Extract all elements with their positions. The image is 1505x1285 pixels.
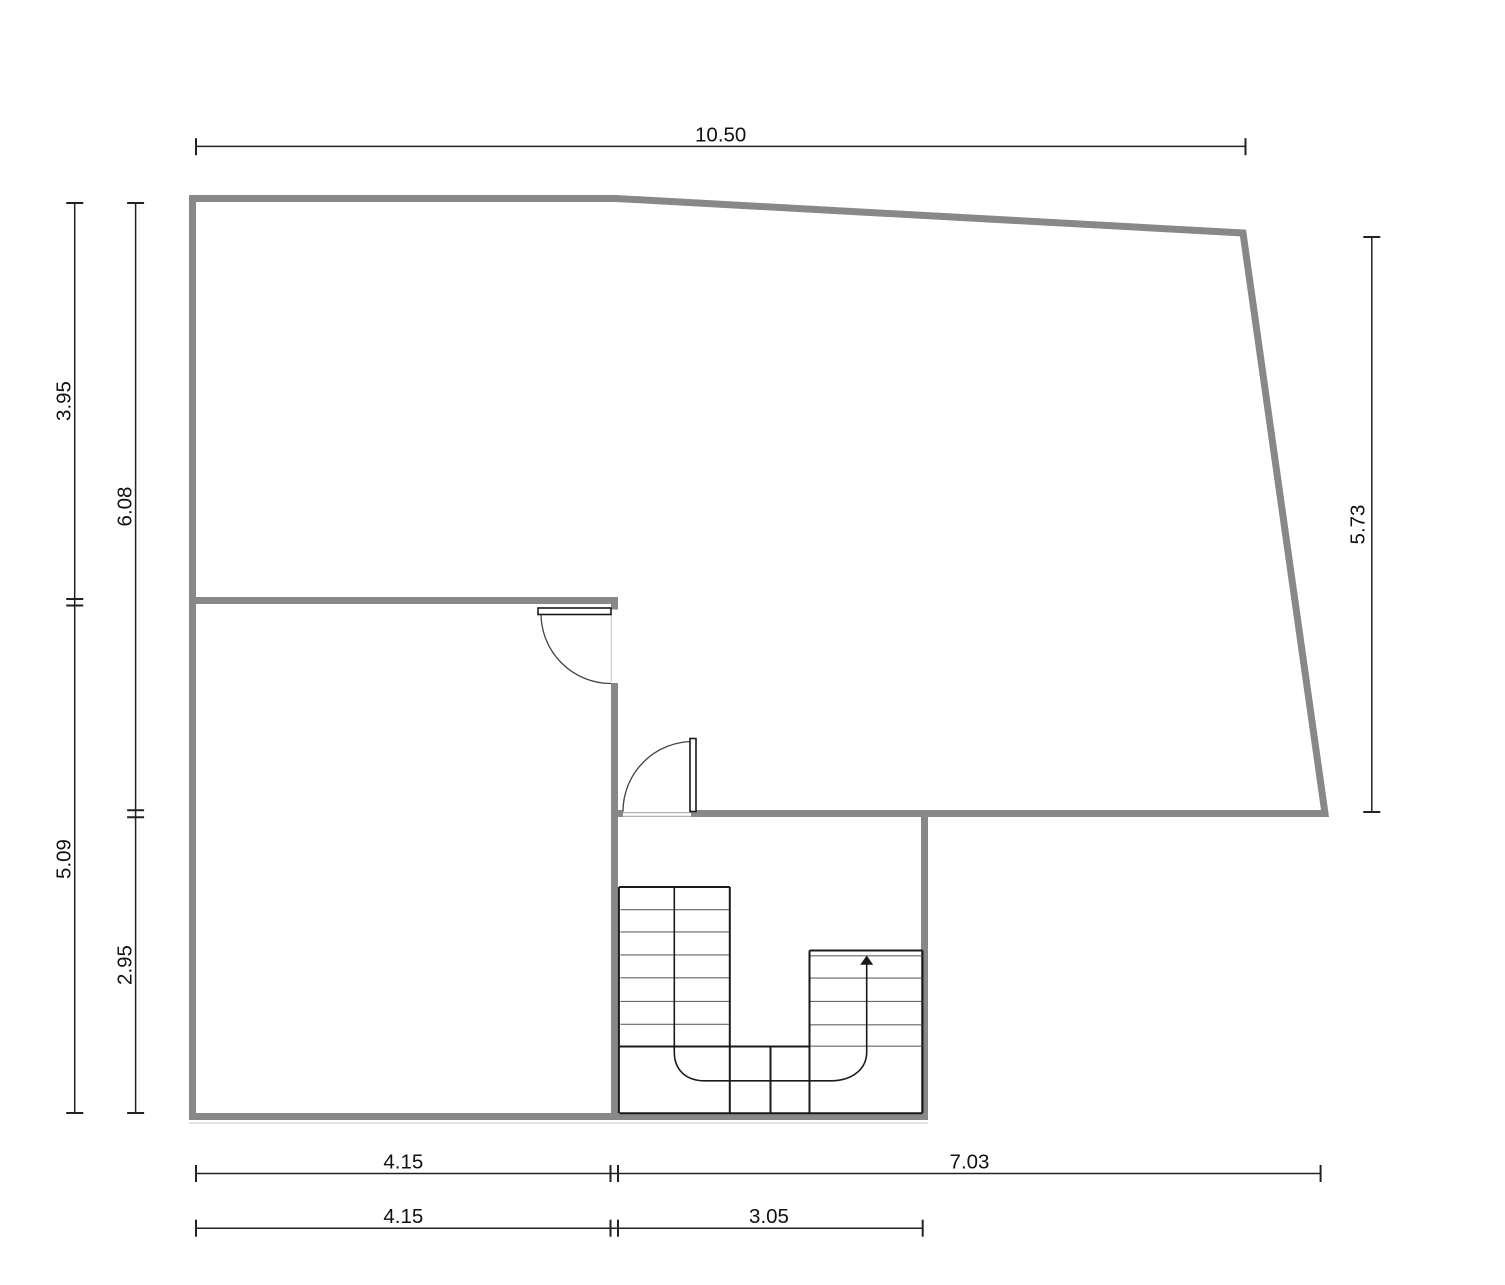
svg-text:3.05: 3.05 xyxy=(749,1205,789,1228)
svg-text:4.15: 4.15 xyxy=(383,1151,423,1174)
svg-text:2.95: 2.95 xyxy=(114,945,137,985)
svg-text:4.15: 4.15 xyxy=(383,1205,423,1228)
svg-text:6.08: 6.08 xyxy=(114,487,137,527)
svg-text:5.73: 5.73 xyxy=(1346,505,1369,545)
svg-text:10.50: 10.50 xyxy=(695,124,746,147)
svg-text:3.95: 3.95 xyxy=(53,381,76,421)
svg-text:7.03: 7.03 xyxy=(950,1151,990,1174)
svg-text:5.09: 5.09 xyxy=(53,839,76,879)
